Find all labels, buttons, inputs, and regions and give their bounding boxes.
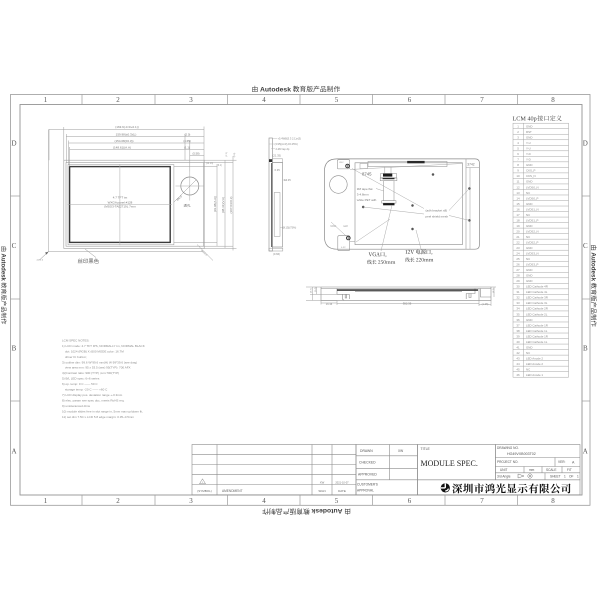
svg-text:4: 4: [262, 96, 266, 104]
svg-text:352.35: 352.35: [403, 302, 412, 306]
svg-text:30: 30: [516, 285, 520, 289]
svg-text:18: 18: [516, 218, 520, 222]
svg-text:45: 45: [516, 367, 520, 371]
svg-text:13: 13: [516, 191, 520, 195]
svg-text:LVDS3_P: LVDS3_P: [526, 263, 539, 267]
svg-text:LED Cathode 1R: LED Cathode 1R: [526, 323, 548, 327]
svg-text:(2.3): (2.3): [226, 152, 228, 157]
svg-text:Y-D: Y-D: [526, 158, 531, 162]
svg-text:APPROVED: APPROVED: [358, 473, 377, 477]
svg-text:12: 12: [516, 185, 520, 189]
svg-text:GND: GND: [526, 224, 532, 228]
svg-text:C: C: [583, 242, 588, 250]
svg-text:FIT: FIT: [567, 468, 572, 472]
svg-text:TITLE: TITLE: [421, 447, 431, 451]
svg-text:Y-U: Y-U: [526, 147, 531, 151]
svg-text:39: 39: [516, 334, 520, 338]
svg-text:15: 15: [516, 202, 520, 206]
svg-text:(163.9(-0.3/+0.1)): (163.9(-0.3/+0.1)): [115, 125, 138, 129]
svg-text:GND: GND: [526, 268, 532, 272]
svg-text:LVDS0_N: LVDS0_N: [526, 185, 539, 189]
svg-text:2: 2: [116, 497, 120, 505]
svg-text:6) op. temp: 0 C ------ 50 C: 6) op. temp: 0 C ------ 50 C: [62, 382, 98, 386]
svg-text:Y-U: Y-U: [526, 141, 531, 145]
svg-text:RST: RST: [526, 130, 532, 134]
svg-text:dot: 1024 (RGB) X (600 MODE: dot: 1024 (RGB) X (600 MODE color: 16.7M: [65, 349, 124, 353]
svg-text:LED Cathode 1L: LED Cathode 1L: [526, 329, 548, 333]
svg-text:32: 32: [516, 296, 520, 300]
svg-text:UNIT: UNIT: [500, 468, 507, 472]
svg-text:28: 28: [516, 274, 520, 278]
svg-text:mm: mm: [529, 468, 535, 472]
svg-text:SIGN: SIGN: [318, 489, 325, 493]
svg-text:peel shield mesh: peel shield mesh: [426, 214, 449, 218]
svg-text:5: 5: [335, 497, 339, 505]
svg-text:(4.1): (4.1): [493, 288, 495, 293]
svg-text:3742: 3742: [467, 163, 475, 167]
svg-text:NC: NC: [526, 367, 530, 371]
svg-text:17: 17: [516, 213, 520, 217]
svg-text:LED Anode 2: LED Anode 2: [526, 362, 543, 366]
svg-text:9) untoleranced dims: 9) untoleranced dims: [62, 404, 91, 408]
svg-text:(154.08(±0.3)): (154.08(±0.3)): [115, 139, 134, 143]
svg-text:CUSTOMER'S: CUSTOMER'S: [357, 482, 378, 486]
svg-text:LVDS2_P: LVDS2_P: [526, 240, 539, 244]
svg-text:(3.95)(A.R),±0.25%): (3.95)(A.R),±0.25%): [275, 142, 298, 146]
svg-text:10: 10: [516, 174, 520, 178]
svg-text:storage temp: -20 C ------ +60: storage temp: -20 C ------ +60 C: [65, 388, 108, 392]
svg-text:view area mm: 95 x 53.5 (see): view area mm: 95 x 53.5 (see) 95(TYP): 7…: [65, 366, 131, 370]
svg-text:10) module slides free in slot: 10) module slides free in slot range in,…: [62, 409, 143, 413]
svg-text:LED Anode 2: LED Anode 2: [526, 356, 543, 360]
svg-text:37: 37: [516, 323, 520, 327]
svg-text:8: 8: [551, 96, 555, 104]
svg-text:(12.13): (12.13): [206, 163, 214, 165]
svg-text:M3x4: M3x4: [331, 225, 338, 228]
svg-text:2-M3 tap dp: 2-M3 tap dp: [276, 147, 290, 151]
svg-text:20: 20: [516, 229, 520, 233]
svg-text:41: 41: [516, 345, 520, 349]
svg-text:Autodesk: Autodesk: [311, 507, 342, 514]
svg-text:XW: XW: [398, 449, 403, 453]
svg-text:1: 1: [44, 497, 48, 505]
svg-text:33: 33: [516, 301, 520, 305]
svg-text:GND: GND: [526, 318, 532, 322]
svg-text:D: D: [11, 140, 16, 148]
svg-text:3rd Angle: 3rd Angle: [497, 475, 511, 479]
svg-text:GND: GND: [526, 180, 532, 184]
svg-text:(21.35): (21.35): [273, 154, 282, 158]
svg-text:LED Cathode 1L: LED Cathode 1L: [526, 340, 548, 344]
svg-text:DRAWN: DRAWN: [360, 449, 373, 453]
svg-text:OF: OF: [569, 475, 573, 479]
svg-text:KBV: KBV: [339, 162, 344, 164]
svg-text:GND: GND: [526, 202, 532, 206]
svg-text:(91.98(A.A)): (91.98(A.A)): [213, 196, 217, 212]
svg-text:26: 26: [516, 263, 520, 267]
svg-text:LED Cathode 4R: LED Cathode 4R: [526, 285, 548, 289]
svg-text:19: 19: [516, 224, 520, 228]
svg-text:27: 27: [516, 268, 520, 272]
svg-text:43: 43: [516, 356, 520, 360]
svg-text:(4.65): (4.65): [183, 139, 190, 143]
svg-text:11: 11: [516, 180, 519, 184]
svg-text:(adh bracket x8): (adh bracket x8): [426, 208, 448, 212]
svg-text:GND: GND: [526, 163, 532, 167]
svg-text:(0.8): (0.8): [234, 152, 236, 157]
svg-text:NC: NC: [526, 235, 530, 239]
svg-text:LED Cathode 2L: LED Cathode 2L: [526, 312, 548, 316]
svg-text:driver IC built-in;: driver IC built-in;: [65, 355, 87, 359]
svg-text:(MSG3-TA02719L 7mm: (MSG3-TA02719L 7mm: [104, 205, 136, 209]
svg-text:1: 1: [564, 475, 566, 479]
svg-text:3: 3: [189, 96, 193, 104]
svg-text:LED Cathode 1R: LED Cathode 1R: [526, 334, 548, 338]
svg-text:C: C: [12, 242, 17, 250]
svg-text:11) set dim 7.5C L LCD 5.8 edg: 11) set dim 7.5C L LCD 5.8 edge margin: …: [62, 415, 134, 419]
svg-text:VER:: VER:: [558, 460, 566, 464]
svg-text:159.98(±0.3)(L): 159.98(±0.3)(L): [116, 132, 137, 136]
svg-text:white PET adh: white PET adh: [357, 198, 377, 202]
svg-text:(1.1): (1.1): [184, 145, 190, 149]
svg-text:SHEET: SHEET: [550, 475, 561, 479]
svg-text:23: 23: [516, 246, 520, 250]
svg-text:GND: GND: [526, 136, 532, 140]
svg-text:(5.4): (5.4): [315, 287, 317, 292]
svg-text:4)(Contrast ratio: 900 (TYP) ,: 4)(Contrast ratio: 900 (TYP) ,lum:700(TY…: [62, 371, 119, 375]
svg-text:36: 36: [516, 318, 520, 322]
svg-text:6: 6: [408, 96, 412, 104]
svg-text:(9.7): (9.7): [310, 288, 312, 293]
svg-text:(0.66): (0.66): [273, 252, 280, 256]
svg-text:GND: GND: [526, 345, 532, 349]
svg-text:34: 34: [516, 307, 520, 311]
svg-text:DATE: DATE: [338, 489, 346, 493]
svg-text:LVDS1_N: LVDS1_N: [526, 207, 539, 211]
svg-text:3-4.8mm: 3-4.8mm: [357, 193, 369, 197]
svg-text:CHECKED: CHECKED: [359, 461, 376, 465]
svg-text:CKS_P: CKS_P: [526, 169, 536, 173]
svg-text:LCM 40p: LCM 40p: [513, 116, 537, 123]
svg-text:LVDS1_P: LVDS1_P: [526, 218, 539, 222]
svg-text:LVDS3_N: LVDS3_N: [526, 252, 539, 256]
svg-text:1: 1: [44, 96, 48, 104]
svg-text:LVDS2_N: LVDS2_N: [526, 229, 539, 233]
svg-text:NC: NC: [526, 191, 530, 195]
svg-text:(6.2): (6.2): [217, 165, 222, 167]
svg-text:LED Cathode 3L: LED Cathode 3L: [526, 301, 548, 305]
svg-text:NC: NC: [526, 213, 530, 217]
svg-text:B: B: [583, 345, 588, 353]
svg-text:24: 24: [516, 252, 520, 256]
svg-text:A: A: [11, 448, 16, 456]
svg-text:22: 22: [516, 240, 520, 244]
svg-text:DRAWING NO.: DRAWING NO.: [497, 446, 519, 450]
svg-text:40: 40: [516, 340, 520, 344]
svg-text:12.35: 12.35: [284, 178, 291, 182]
svg-text:Y-D: Y-D: [526, 152, 531, 156]
svg-text:1: 1: [577, 475, 579, 479]
svg-text:GND: GND: [526, 274, 532, 278]
svg-text:SCALE: SCALE: [546, 468, 556, 472]
svg-text:B: B: [12, 345, 17, 353]
svg-text:(98.31)(V.A): (98.31)(V.A): [221, 197, 225, 213]
svg-text:6.35: 6.35: [275, 168, 281, 172]
svg-text:(2.15)(75%): (2.15)(75%): [283, 225, 297, 229]
svg-text:NC: NC: [526, 257, 530, 261]
svg-text:LED Cathode 4L: LED Cathode 4L: [526, 290, 548, 294]
svg-text:HG49VXB003T02: HG49VXB003T02: [507, 452, 536, 456]
svg-text:4: 4: [262, 497, 266, 505]
svg-text:1) LCD mode: 4.7 TFT IPS, NORM: 1) LCD mode: 4.7 TFT IPS, NORMALLY tm, N…: [62, 344, 145, 348]
svg-text:7: 7: [480, 497, 484, 505]
svg-text:GND: GND: [526, 125, 532, 129]
svg-text:44: 44: [516, 362, 520, 366]
svg-text:AMENDMENT: AMENDMENT: [222, 489, 243, 493]
svg-text:5) B/L LED spec: 6+6 series: 5) B/L LED spec: 6+6 series: [62, 377, 100, 381]
svg-text:6: 6: [408, 497, 412, 505]
svg-text:16: 16: [516, 207, 520, 211]
svg-text:5: 5: [335, 96, 339, 104]
svg-text:Autodesk: Autodesk: [589, 252, 596, 281]
svg-text:Autodesk: Autodesk: [260, 87, 291, 94]
svg-text:8: 8: [551, 497, 555, 505]
svg-text:3: 3: [189, 497, 193, 505]
svg-text:4-R2.0: 4-R2.0: [37, 260, 44, 262]
svg-text:+5.4WB(3.3 2.1)x(3): +5.4WB(3.3 2.1)x(3): [278, 137, 302, 141]
svg-text:7: 7: [480, 96, 484, 104]
svg-text:8) elec. param see spec doc, m: 8) elec. param see spec doc, meets RoHS …: [62, 398, 125, 402]
svg-text:4.7 TFT tm: 4.7 TFT tm: [113, 195, 128, 199]
svg-text:GND: GND: [526, 246, 532, 250]
svg-text:(1.35): (1.35): [482, 302, 489, 306]
svg-text:A: A: [583, 448, 588, 456]
svg-text:16.36: 16.36: [326, 302, 333, 306]
svg-text:14: 14: [516, 196, 520, 200]
svg-text:nut8: nut8: [343, 225, 348, 228]
svg-text:LCM SPEC NOTES:: LCM SPEC NOTES:: [62, 339, 90, 343]
svg-text:(107.04±0.3): (107.04±0.3): [229, 197, 233, 214]
svg-text:LED Anode 1: LED Anode 1: [526, 373, 543, 377]
svg-text:NC: NC: [526, 351, 530, 355]
svg-text:35: 35: [516, 312, 520, 316]
svg-text:25: 25: [516, 257, 520, 261]
svg-text:APPROVAL: APPROVAL: [357, 488, 374, 492]
svg-text:8745: 8745: [362, 172, 372, 177]
svg-text:3) outline dim: 99.6 W*99.6 mm: 3) outline dim: 99.6 W*99.6 mm(H) W 99*3…: [62, 360, 137, 364]
svg-text:46: 46: [516, 373, 520, 377]
svg-text:(5.58): (5.58): [192, 151, 199, 155]
svg-text:LED Cathode 2R: LED Cathode 2R: [526, 307, 548, 311]
svg-text:29: 29: [516, 279, 520, 283]
svg-text:GND: GND: [526, 279, 532, 283]
svg-text:MODULE SPEC.: MODULE SPEC.: [421, 459, 478, 468]
svg-text:XW: XW: [320, 480, 325, 484]
svg-text:21: 21: [516, 235, 520, 239]
svg-text:(SYMBOL): (SYMBOL): [197, 489, 212, 493]
svg-text:LVDS0_P: LVDS0_P: [526, 196, 539, 200]
svg-text:7) LCD display pos. deviation: 7) LCD display pos. deviation range +-0.…: [62, 393, 123, 397]
svg-text:2021-10-07: 2021-10-07: [335, 480, 349, 484]
svg-text:LED Cathode 3R: LED Cathode 3R: [526, 296, 548, 300]
svg-text:38: 38: [516, 329, 520, 333]
svg-text:31: 31: [516, 290, 520, 294]
svg-text:(2.0): (2.0): [185, 132, 191, 136]
svg-text:CKS_N: CKS_N: [526, 174, 536, 178]
svg-text:2: 2: [116, 96, 120, 104]
svg-text:3M tape flat: 3M tape flat: [357, 187, 373, 191]
svg-text:42: 42: [516, 351, 520, 355]
svg-text:D: D: [583, 140, 588, 148]
svg-text:Autodesk: Autodesk: [0, 254, 6, 282]
svg-text:PROJECT NO.: PROJECT NO.: [497, 460, 518, 464]
svg-text:(148.61)(A.A): (148.61)(A.A): [113, 145, 131, 149]
